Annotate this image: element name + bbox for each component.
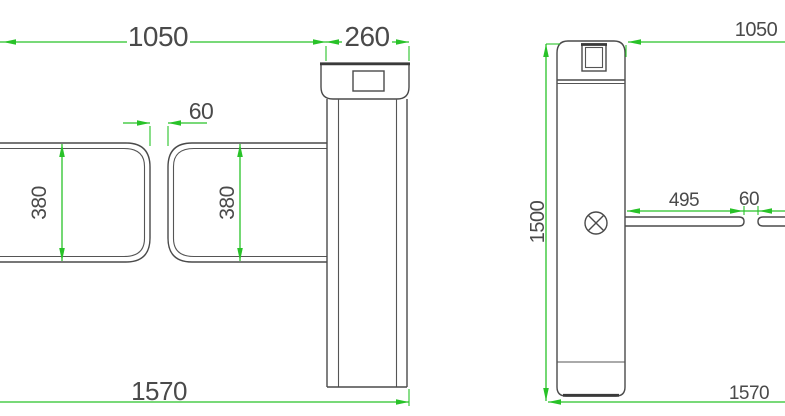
swing-arm-right-inner xyxy=(174,149,328,257)
reader-window-side-inner xyxy=(586,48,603,68)
dim-front-passage-width: 1050 xyxy=(0,21,326,61)
cad-drawing-canvas: 1050 260 60 380 xyxy=(0,0,785,416)
arrow-right xyxy=(313,39,326,45)
reader-window-front xyxy=(353,71,384,91)
dim-left-arm-height: 380 xyxy=(28,144,65,261)
dim-right-arm-height: 380 xyxy=(216,144,243,261)
dim-label-1050-front: 1050 xyxy=(128,21,188,52)
dim-label-1050-side: 1050 xyxy=(735,19,778,41)
side-arm-bar-far xyxy=(758,217,785,226)
front-view: 1050 260 60 380 xyxy=(0,21,410,406)
swing-arm-right xyxy=(168,143,327,262)
dim-label-380-left: 380 xyxy=(28,186,51,220)
dim-label-495: 495 xyxy=(669,190,699,211)
dim-label-380-right: 380 xyxy=(216,186,239,220)
dim-label-60-side: 60 xyxy=(739,189,759,210)
pivot-axis-icon xyxy=(585,212,607,234)
arrow-left xyxy=(3,39,16,45)
dim-front-overall-width: 1570 xyxy=(0,376,409,406)
dim-label-1570-side: 1570 xyxy=(729,383,769,404)
side-arm-bar-near xyxy=(625,217,744,226)
swing-arm-right-outer xyxy=(168,143,327,262)
dim-label-260: 260 xyxy=(344,21,389,52)
turnstile-dimension-drawing: 1050 260 60 380 xyxy=(0,0,785,416)
dim-label-1500: 1500 xyxy=(527,200,549,243)
side-view: 1050 1500 495 60 1570 xyxy=(527,19,785,405)
front-cabinet-cap xyxy=(321,64,409,99)
dim-front-arm-gap: 60 xyxy=(123,98,213,146)
dim-label-1570-front: 1570 xyxy=(131,376,187,406)
swing-arm-left xyxy=(0,143,150,262)
dim-side-cabinet-height: 1500 xyxy=(527,44,560,401)
dim-side-lane-width: 1050 xyxy=(626,19,785,57)
dim-front-cabinet-width: 260 xyxy=(326,21,409,61)
dim-label-60-front: 60 xyxy=(189,98,214,124)
swing-arm-left-inner xyxy=(0,149,145,257)
side-arm-bar xyxy=(625,217,785,226)
swing-arm-left-outer xyxy=(0,143,150,262)
front-cabinet xyxy=(320,64,410,387)
